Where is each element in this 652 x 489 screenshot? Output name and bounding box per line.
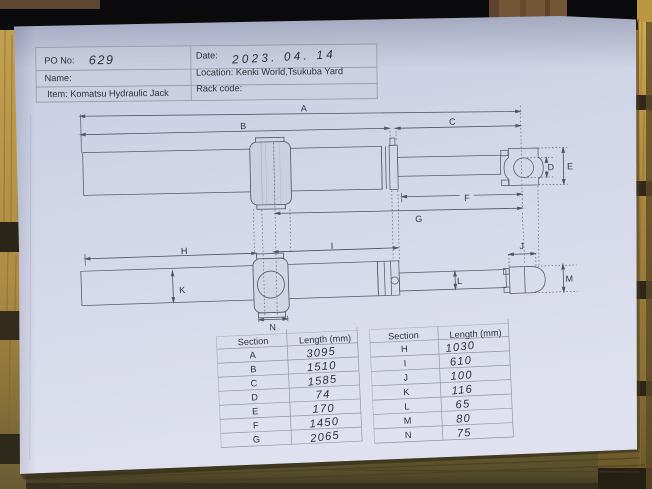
svg-text:H: H xyxy=(401,344,408,354)
svg-text:I: I xyxy=(403,358,406,368)
svg-text:74: 74 xyxy=(315,389,331,402)
svg-text:D: D xyxy=(547,162,554,172)
svg-text:E: E xyxy=(252,406,259,416)
svg-text:H: H xyxy=(181,246,188,256)
svg-text:Section: Section xyxy=(388,330,419,341)
svg-text:C: C xyxy=(449,117,456,127)
svg-text:Date:: Date: xyxy=(196,50,218,60)
svg-text:L: L xyxy=(457,276,462,286)
svg-text:K: K xyxy=(179,285,185,295)
svg-text:M: M xyxy=(565,274,573,284)
svg-text:N: N xyxy=(405,430,412,440)
svg-text:N: N xyxy=(269,322,276,332)
svg-text:65: 65 xyxy=(455,398,471,411)
svg-text:1510: 1510 xyxy=(307,360,338,374)
svg-text:Location: Kenki World,Tsukuba: Location: Kenki World,Tsukuba Yard xyxy=(196,66,343,78)
svg-text:100: 100 xyxy=(450,369,473,383)
svg-text:L: L xyxy=(404,401,410,411)
svg-text:E: E xyxy=(567,161,573,171)
svg-text:C: C xyxy=(250,378,257,388)
svg-text:Item: Komatsu Hydraulic Jack: Item: Komatsu Hydraulic Jack xyxy=(47,88,169,99)
svg-text:J: J xyxy=(403,373,408,383)
svg-text:F: F xyxy=(253,420,259,430)
svg-text:B: B xyxy=(240,121,246,131)
svg-text:Section: Section xyxy=(237,336,268,347)
svg-text:J: J xyxy=(519,241,524,251)
svg-text:610: 610 xyxy=(449,355,472,369)
svg-text:116: 116 xyxy=(451,383,474,397)
svg-text:D: D xyxy=(251,392,258,402)
svg-text:A: A xyxy=(301,103,307,113)
svg-text:M: M xyxy=(404,416,412,426)
svg-text:Name:: Name: xyxy=(44,73,71,83)
svg-text:B: B xyxy=(250,364,257,374)
svg-text:G: G xyxy=(415,214,422,224)
svg-text:629: 629 xyxy=(89,53,115,67)
svg-text:G: G xyxy=(253,434,261,444)
svg-text:170: 170 xyxy=(312,403,335,416)
svg-text:F: F xyxy=(464,193,470,203)
svg-text:Rack code:: Rack code: xyxy=(196,83,242,93)
svg-text:75: 75 xyxy=(456,427,472,440)
svg-text:I: I xyxy=(331,241,334,251)
svg-text:PO No:: PO No: xyxy=(44,55,74,65)
svg-text:80: 80 xyxy=(456,413,472,426)
